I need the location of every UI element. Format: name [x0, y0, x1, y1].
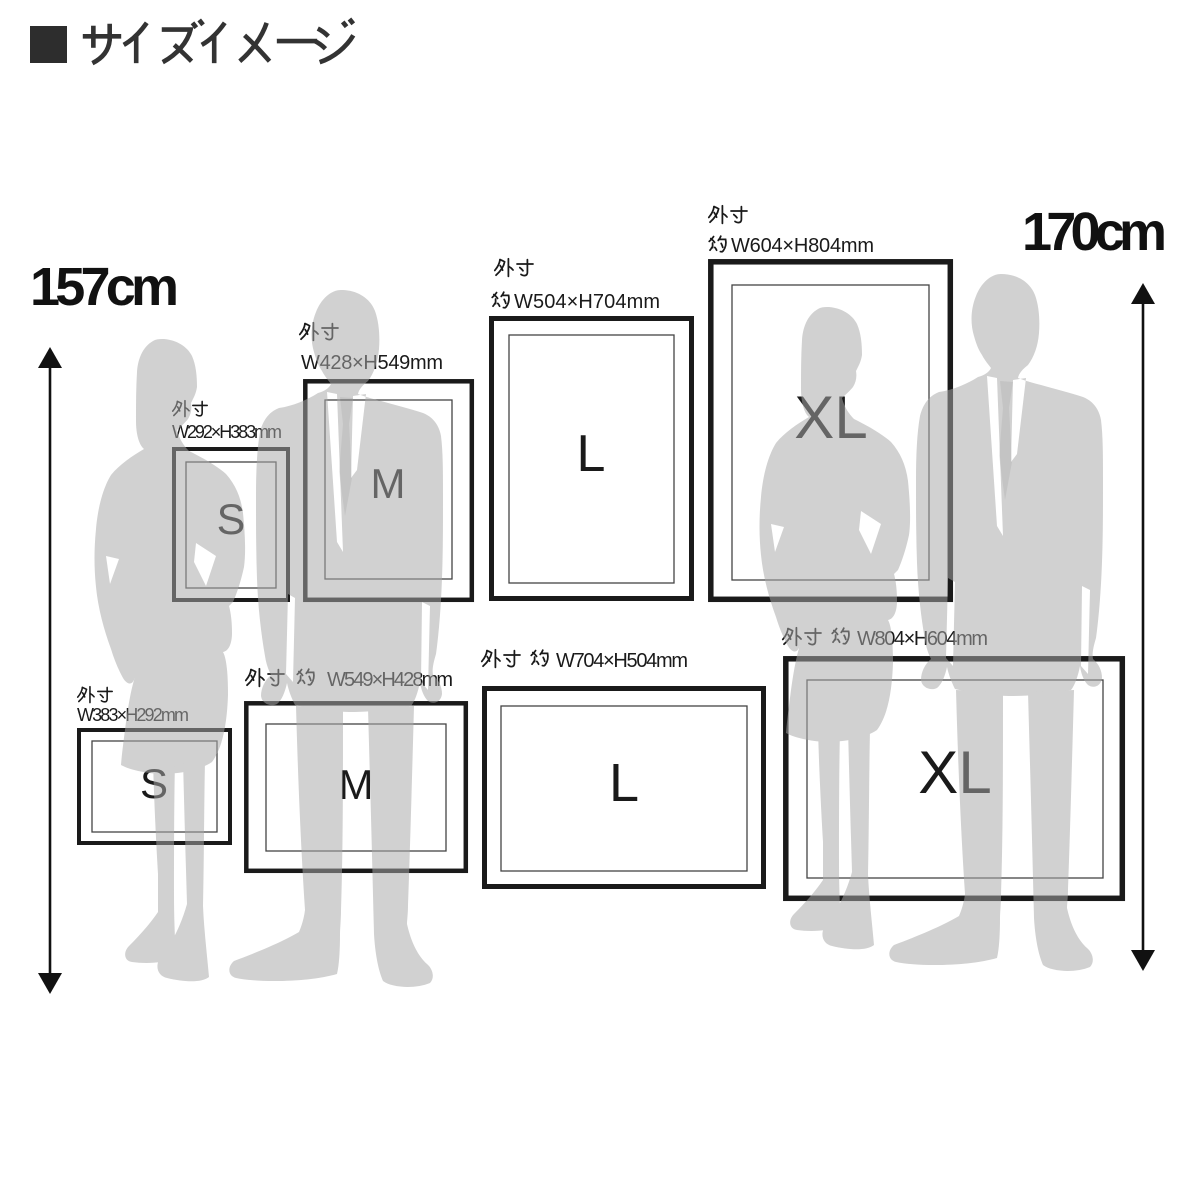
svg-text:L: L [577, 425, 606, 483]
svg-text:170cm: 170cm [1022, 202, 1167, 262]
svg-text:W604×H804mm: W604×H804mm [731, 235, 874, 257]
svg-text:157cm: 157cm [30, 257, 179, 317]
svg-text:W504×H704mm: W504×H704mm [514, 291, 660, 313]
svg-text:W704×H504mm: W704×H504mm [556, 650, 688, 672]
svg-text:M: M [339, 761, 374, 808]
svg-text:L: L [609, 753, 639, 813]
